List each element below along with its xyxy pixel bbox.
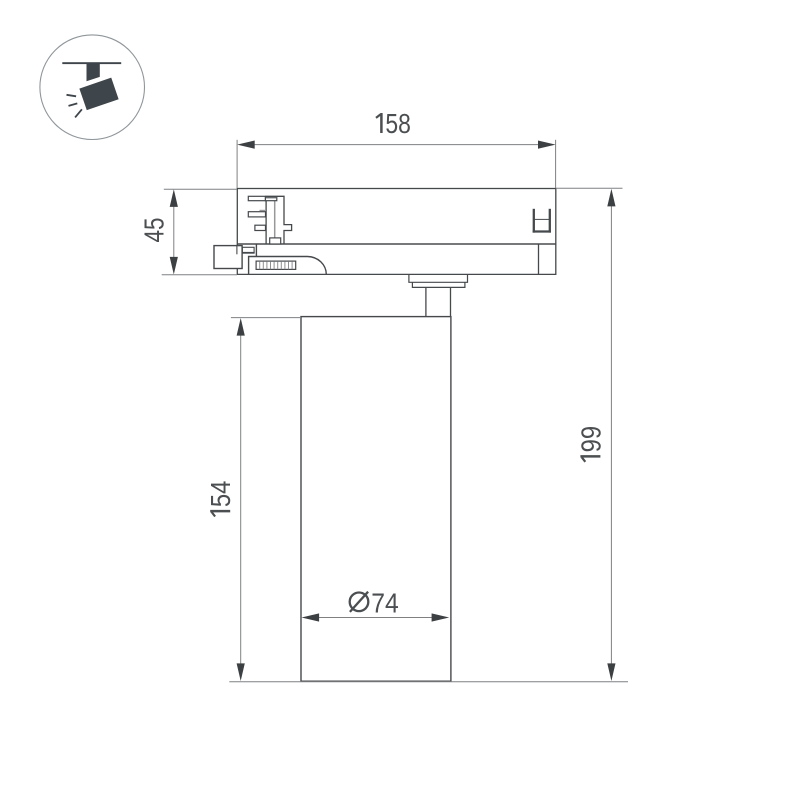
svg-text:45: 45 — [138, 218, 169, 243]
svg-text:54: 54 — [205, 481, 236, 508]
svg-text:99: 99 — [575, 426, 606, 453]
svg-text:74: 74 — [371, 587, 399, 618]
svg-text:58: 58 — [385, 108, 411, 139]
